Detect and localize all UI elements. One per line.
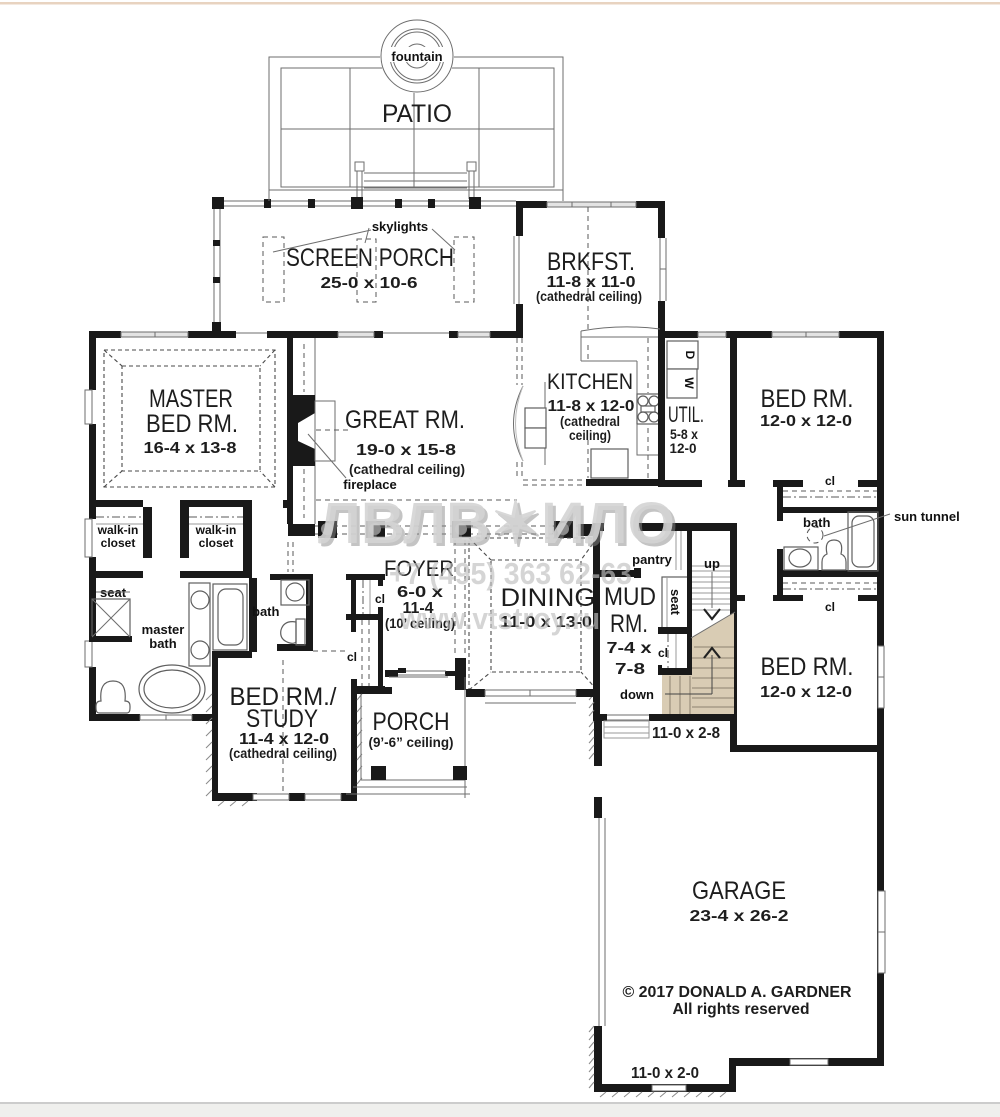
svg-text:+7 (495) 363 62-63: +7 (495) 363 62-63 bbox=[389, 556, 632, 591]
svg-text:walk-in: walk-in bbox=[97, 523, 139, 537]
svg-text:seat: seat bbox=[668, 589, 683, 616]
svg-text:down: down bbox=[620, 687, 654, 702]
svg-text:www.vtstroy.ru: www.vtstroy.ru bbox=[399, 601, 600, 636]
svg-text:cl: cl bbox=[658, 646, 668, 660]
svg-text:fountain: fountain bbox=[391, 49, 442, 64]
svg-text:23-4 x 26-2: 23-4 x 26-2 bbox=[690, 908, 789, 925]
svg-text:PORCH: PORCH bbox=[373, 708, 450, 736]
svg-text:fireplace: fireplace bbox=[343, 477, 396, 492]
svg-text:7-8: 7-8 bbox=[615, 661, 645, 678]
svg-text:cl: cl bbox=[347, 650, 357, 664]
svg-text:D: D bbox=[683, 351, 697, 360]
svg-text:7-4 x: 7-4 x bbox=[607, 640, 652, 657]
svg-text:cl: cl bbox=[825, 474, 835, 488]
svg-text:© 2017 DONALD A. GARDNER: © 2017 DONALD A. GARDNER bbox=[623, 984, 852, 1001]
svg-text:STUDY: STUDY bbox=[246, 705, 318, 733]
svg-text:GREAT RM.: GREAT RM. bbox=[345, 406, 465, 434]
svg-text:ЛВЛВ✶ИЛО: ЛВЛВ✶ИЛО bbox=[318, 491, 675, 556]
svg-text:BED RM.: BED RM. bbox=[761, 385, 854, 413]
svg-text:12-0 x 12-0: 12-0 x 12-0 bbox=[760, 684, 852, 701]
svg-text:BRKFST.: BRKFST. bbox=[547, 248, 635, 276]
svg-text:PATIO: PATIO bbox=[382, 100, 452, 128]
svg-text:ceiling): ceiling) bbox=[569, 427, 611, 443]
svg-text:cl: cl bbox=[375, 592, 385, 606]
svg-text:KITCHEN: KITCHEN bbox=[547, 369, 633, 394]
svg-text:16-4 x 13-8: 16-4 x 13-8 bbox=[144, 440, 237, 457]
svg-text:(cathedral ceiling): (cathedral ceiling) bbox=[536, 288, 642, 304]
svg-text:19-0 x 15-8: 19-0 x 15-8 bbox=[356, 442, 456, 459]
svg-text:cl: cl bbox=[825, 600, 835, 614]
svg-text:sun tunnel: sun tunnel bbox=[894, 509, 960, 524]
svg-text:All rights reserved: All rights reserved bbox=[673, 1001, 810, 1018]
svg-text:(9’-6” ceiling): (9’-6” ceiling) bbox=[369, 734, 454, 750]
svg-text:skylights: skylights bbox=[372, 219, 428, 234]
svg-text:bath: bath bbox=[803, 515, 831, 530]
svg-text:11-0 x 2-8: 11-0 x 2-8 bbox=[652, 725, 720, 742]
svg-text:bath: bath bbox=[252, 604, 280, 619]
svg-text:MASTER: MASTER bbox=[149, 385, 233, 413]
svg-text:GARAGE: GARAGE bbox=[692, 877, 786, 905]
svg-text:11-0 x 2-0: 11-0 x 2-0 bbox=[631, 1065, 699, 1082]
svg-text:up: up bbox=[704, 556, 720, 571]
svg-text:12-0 x 12-0: 12-0 x 12-0 bbox=[760, 413, 852, 430]
svg-text:RM.: RM. bbox=[610, 610, 648, 638]
svg-text:12-0: 12-0 bbox=[670, 440, 697, 456]
svg-text:BED RM.: BED RM. bbox=[146, 410, 238, 438]
svg-text:(cathedral ceiling): (cathedral ceiling) bbox=[229, 745, 337, 761]
svg-text:25-0 x 10-6: 25-0 x 10-6 bbox=[321, 275, 418, 292]
svg-text:W: W bbox=[682, 377, 696, 389]
svg-text:walk-in: walk-in bbox=[195, 523, 237, 537]
svg-text:BED RM.: BED RM. bbox=[761, 653, 854, 681]
svg-text:bath: bath bbox=[149, 636, 177, 651]
svg-text:UTIL.: UTIL. bbox=[668, 402, 704, 427]
svg-text:master: master bbox=[142, 622, 185, 637]
svg-text:SCREEN PORCH: SCREEN PORCH bbox=[286, 244, 454, 272]
svg-text:closet: closet bbox=[101, 536, 136, 550]
svg-text:(cathedral ceiling): (cathedral ceiling) bbox=[349, 461, 465, 477]
svg-text:closet: closet bbox=[199, 536, 234, 550]
